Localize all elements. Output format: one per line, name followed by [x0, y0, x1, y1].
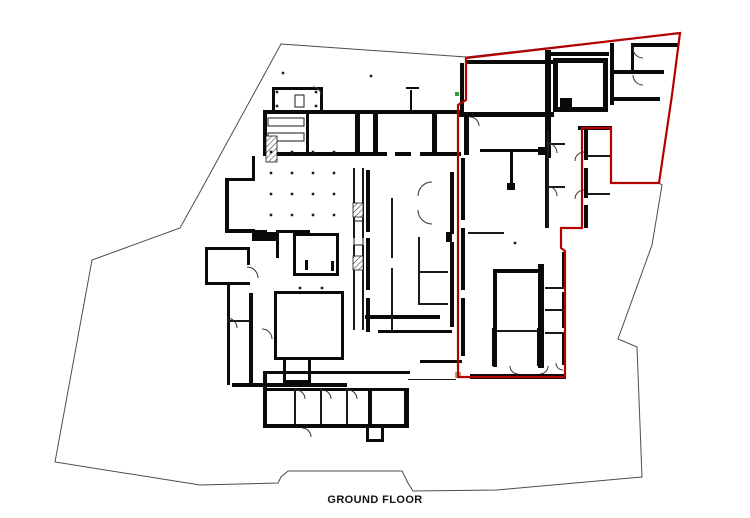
floor-label: GROUND FLOOR — [0, 494, 750, 506]
floor-plan-page: GROUND FLOOR — [0, 0, 750, 518]
ground-floor-plan-svg — [0, 0, 750, 518]
door-swing-arcs-layer — [227, 48, 643, 437]
floor-plan-drawing — [0, 0, 750, 518]
fixtures-layer — [268, 95, 363, 245]
building-walls-layer — [205, 43, 679, 442]
stairs-hatch-layer — [266, 136, 363, 270]
demise-red-outline — [458, 33, 680, 377]
